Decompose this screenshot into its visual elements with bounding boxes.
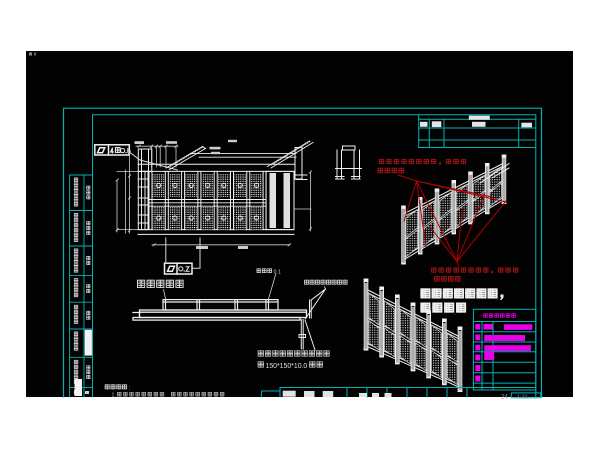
- svg-text:1.: 1.: [112, 393, 116, 399]
- svg-text:1:24: 1:24: [517, 394, 528, 400]
- svg-text:150*150*10.0: 150*150*10.0: [266, 363, 308, 370]
- svg-text:0.1: 0.1: [274, 269, 282, 275]
- svg-text:24: 24: [501, 394, 508, 400]
